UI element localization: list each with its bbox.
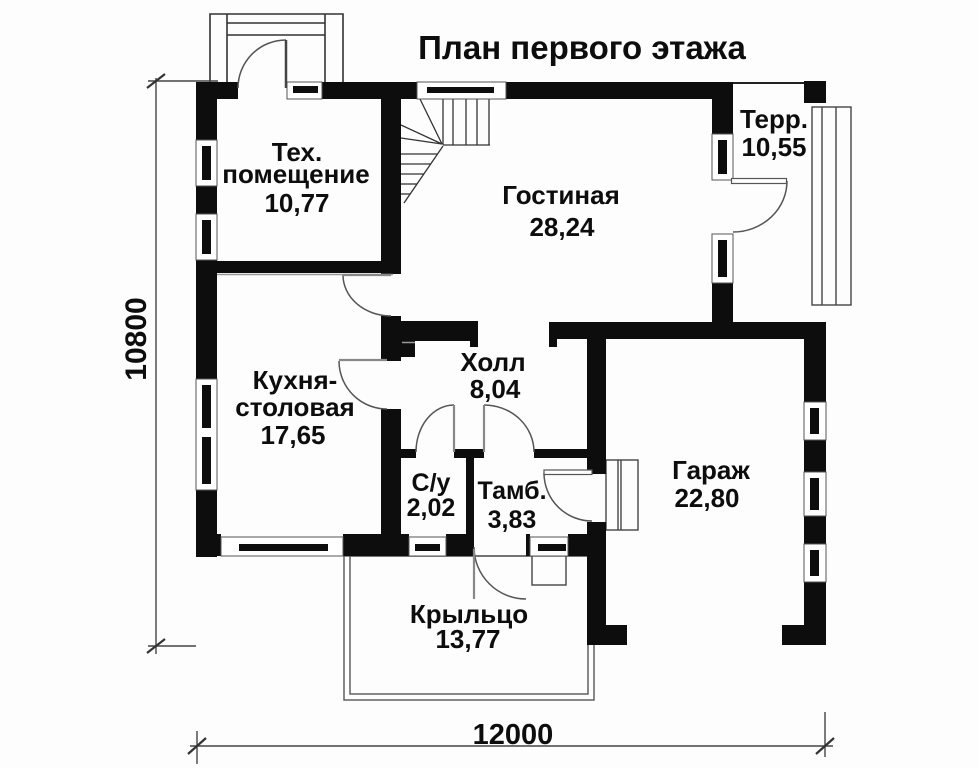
svg-text:10,77: 10,77 <box>264 188 329 218</box>
svg-text:17,65: 17,65 <box>260 420 325 450</box>
svg-text:План первого этажа: План первого этажа <box>418 29 746 66</box>
svg-text:помещение: помещение <box>222 159 369 189</box>
svg-text:Тамб.: Тамб. <box>477 477 546 505</box>
svg-text:столовая: столовая <box>235 392 354 422</box>
svg-text:10,55: 10,55 <box>741 132 806 162</box>
svg-text:Холл: Холл <box>460 347 525 377</box>
svg-text:28,24: 28,24 <box>529 212 595 242</box>
svg-text:Терр.: Терр. <box>740 104 808 134</box>
svg-text:12000: 12000 <box>473 719 554 751</box>
svg-text:13,77: 13,77 <box>435 624 500 654</box>
svg-text:Гараж: Гараж <box>672 455 750 485</box>
svg-text:10800: 10800 <box>120 297 153 380</box>
svg-text:2,02: 2,02 <box>407 494 456 522</box>
svg-text:22,80: 22,80 <box>674 483 739 513</box>
svg-text:3,83: 3,83 <box>488 506 537 534</box>
svg-text:Кухня-: Кухня- <box>253 365 338 395</box>
svg-text:Гостиная: Гостиная <box>502 180 620 210</box>
svg-text:8,04: 8,04 <box>470 374 521 404</box>
svg-text:С/у: С/у <box>412 469 451 497</box>
